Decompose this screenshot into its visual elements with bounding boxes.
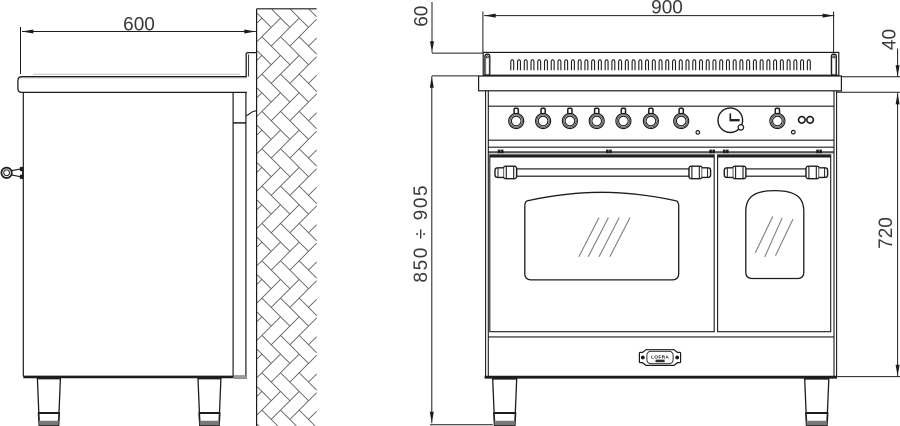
svg-text:40: 40 xyxy=(880,29,900,50)
svg-text:60: 60 xyxy=(412,6,433,27)
svg-text:600: 600 xyxy=(123,15,155,36)
svg-text:LOFRA: LOFRA xyxy=(651,354,669,360)
svg-text:850 ÷ 905: 850 ÷ 905 xyxy=(411,184,432,283)
svg-text:720: 720 xyxy=(876,217,897,249)
